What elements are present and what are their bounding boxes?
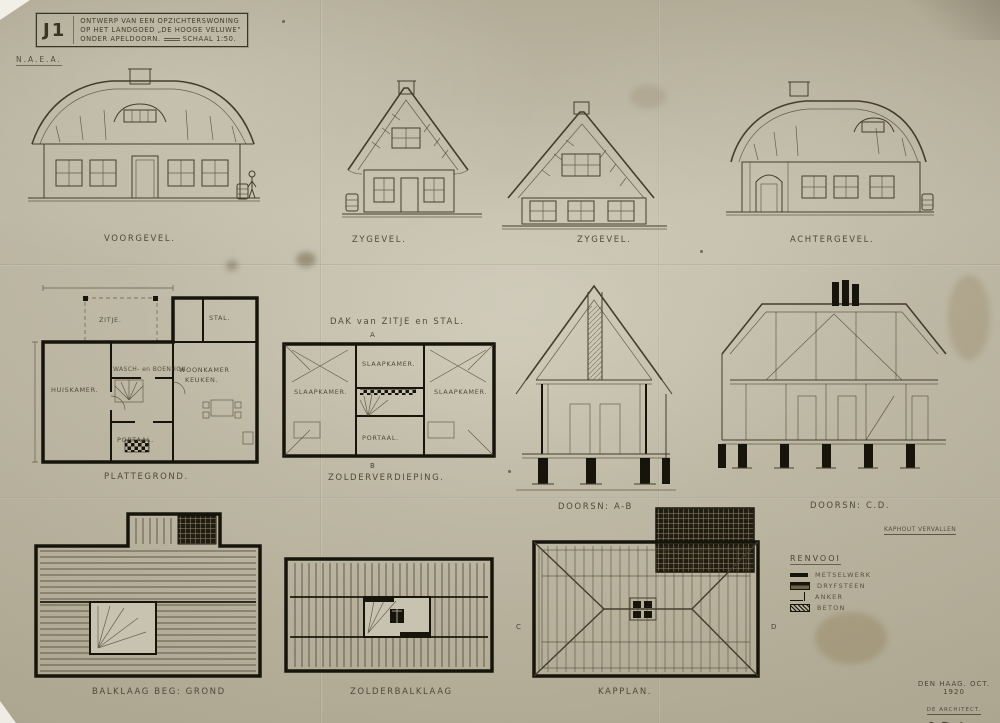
note-kaphout-vervallen: KAPHOUT VERVALLEN: [884, 526, 956, 535]
caption-zygevel-right: ZYGEVEL.: [577, 235, 631, 245]
room-keuken: KEUKEN.: [185, 376, 218, 384]
elevation-zygevel-right-drawing: [502, 102, 667, 232]
caption-zolderverdieping: ZOLDERVERDIEPING.: [328, 473, 445, 483]
stain: [815, 612, 887, 664]
stain: [226, 260, 238, 271]
legend-item-dryfsteen: DRYFSTEEN: [790, 580, 871, 591]
anker-swatch-icon: [790, 593, 803, 601]
fold-crease-horizontal: [0, 497, 1000, 499]
section-marker-c: C: [516, 623, 521, 631]
section-marker-a: A: [370, 331, 375, 339]
room-zitje: ZITJE.: [99, 316, 122, 324]
date-place: DEN HAAG. OCT. 1920: [908, 680, 1000, 696]
caption-balklaag: BALKLAAG BEG: GROND: [92, 687, 226, 697]
room-stal: STAL.: [209, 314, 230, 322]
signature-block: DEN HAAG. OCT. 1920 DE ARCHITECT.: [908, 680, 1000, 723]
archive-stamp: N.A.E.A.: [16, 55, 62, 66]
caption-doorsnede-cd: DOORSN: C.D.: [810, 501, 890, 511]
title-line-3: ONDER APELDOORN.SCHAAL 1:50.: [80, 35, 241, 44]
room-portaal-zolder: PORTAAL.: [362, 434, 399, 442]
room-huiskamer: HUISKAMER.: [51, 386, 98, 394]
title-line-2: OP HET LANDGOED „DE HOOGE VELUWE”: [80, 26, 241, 35]
room-woonkamer: WOONKAMER: [179, 366, 230, 374]
room-slaapkamer-mid: SLAAPKAMER.: [362, 360, 415, 368]
squiggle-divider-icon: [164, 37, 180, 41]
speck: [508, 470, 511, 473]
elevation-zygevel-left-drawing: [342, 80, 482, 232]
speck: [700, 250, 703, 253]
plan-balklaag-drawing: [28, 506, 268, 684]
section-marker-b: B: [370, 462, 375, 470]
dryfsteen-swatch-icon: [790, 582, 810, 590]
section-ab-drawing: [512, 276, 680, 498]
metselwerk-swatch-icon: [790, 573, 808, 577]
fold-crease-horizontal: [0, 264, 1000, 266]
beton-swatch-icon: [790, 604, 810, 612]
drawing-sheet: J1 ONTWERP VAN EEN OPZICHTERSWONING OP H…: [0, 0, 1000, 723]
architect-label: DE ARCHITECT.: [927, 707, 982, 715]
legend-title: RENVOOI: [790, 554, 841, 565]
plan-zolderbalklaag-drawing: [278, 551, 502, 681]
caption-achtergevel: ACHTERGEVEL.: [790, 235, 874, 245]
plan-zolderverdieping-drawing: SLAAPKAMER. SLAAPKAMER. SLAAPKAMER. PORT…: [276, 330, 502, 462]
torn-corner: [0, 0, 30, 20]
title-line-1: ONTWERP VAN EEN OPZICHTERSWONING: [80, 17, 241, 26]
sheet-edge-shadow: [880, 0, 1000, 40]
elevation-achtergevel-drawing: [726, 80, 934, 232]
section-marker-d: D: [771, 623, 776, 631]
title-block: J1 ONTWERP VAN EEN OPZICHTERSWONING OP H…: [36, 13, 248, 47]
room-slaapkamer-right: SLAAPKAMER.: [434, 388, 487, 396]
caption-voorgevel: VOORGEVEL.: [104, 234, 176, 244]
caption-plattegrond: PLATTEGROND.: [104, 472, 189, 482]
caption-zygevel-left: ZYGEVEL.: [352, 235, 406, 245]
drawing-number: J1: [41, 16, 74, 44]
caption-dak-zitje-stal: DAK van ZITJE en STAL.: [330, 317, 465, 327]
room-slaapkamer-left: SLAAPKAMER.: [294, 388, 347, 396]
room-portaal: PORTAAL.: [117, 436, 154, 444]
legend-renvooi: RENVOOI METSELWERK DRYFSTEEN ANKER BETON: [790, 546, 871, 613]
caption-zolderbalklaag: ZOLDERBALKLAAG: [350, 687, 453, 697]
legend-item-anker: ANKER: [790, 591, 871, 602]
title-text: ONTWERP VAN EEN OPZICHTERSWONING OP HET …: [80, 16, 241, 44]
stain: [296, 252, 316, 267]
plan-kapplan-drawing: [526, 506, 766, 684]
speck: [282, 20, 285, 23]
stain: [948, 275, 990, 360]
elevation-voorgevel-drawing: [26, 66, 262, 226]
section-cd-drawing: [716, 280, 952, 472]
legend-item-metselwerk: METSELWERK: [790, 569, 871, 580]
architect-signature-icon: [908, 715, 970, 723]
caption-kapplan: KAPPLAN.: [598, 687, 652, 697]
room-waschhok: WASCH- en BOENHOK: [113, 366, 186, 373]
plan-plattegrond-drawing: ZITJE. STAL. HUISKAMER. WASCH- en BOENHO…: [33, 282, 263, 470]
torn-corner: [0, 701, 16, 723]
legend-item-beton: BETON: [790, 602, 871, 613]
